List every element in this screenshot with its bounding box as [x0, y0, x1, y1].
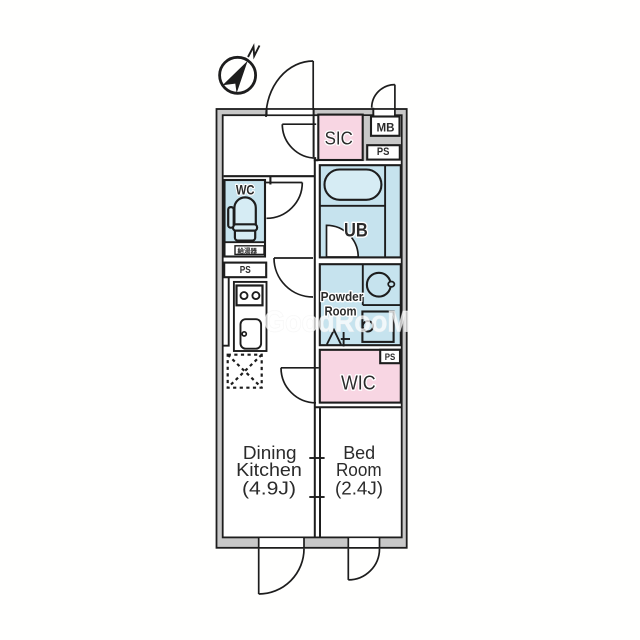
svg-text:(4.9J): (4.9J) — [242, 479, 296, 499]
svg-text:PS: PS — [377, 146, 390, 158]
svg-text:UB: UB — [344, 220, 368, 242]
svg-text:SIC: SIC — [325, 127, 353, 148]
svg-text:MB: MB — [377, 120, 395, 134]
svg-text:PS: PS — [385, 352, 396, 363]
svg-text:PS: PS — [240, 265, 251, 276]
svg-text:(2.4J): (2.4J) — [335, 479, 383, 499]
svg-text:Kitchen: Kitchen — [236, 460, 302, 480]
svg-text:Room: Room — [336, 460, 382, 480]
svg-text:Room: Room — [324, 305, 356, 319]
svg-text:WIC: WIC — [341, 372, 376, 394]
svg-text:Powder: Powder — [321, 290, 364, 304]
svg-text:給湯器: 給湯器 — [238, 246, 258, 255]
svg-text:WC: WC — [236, 181, 255, 197]
